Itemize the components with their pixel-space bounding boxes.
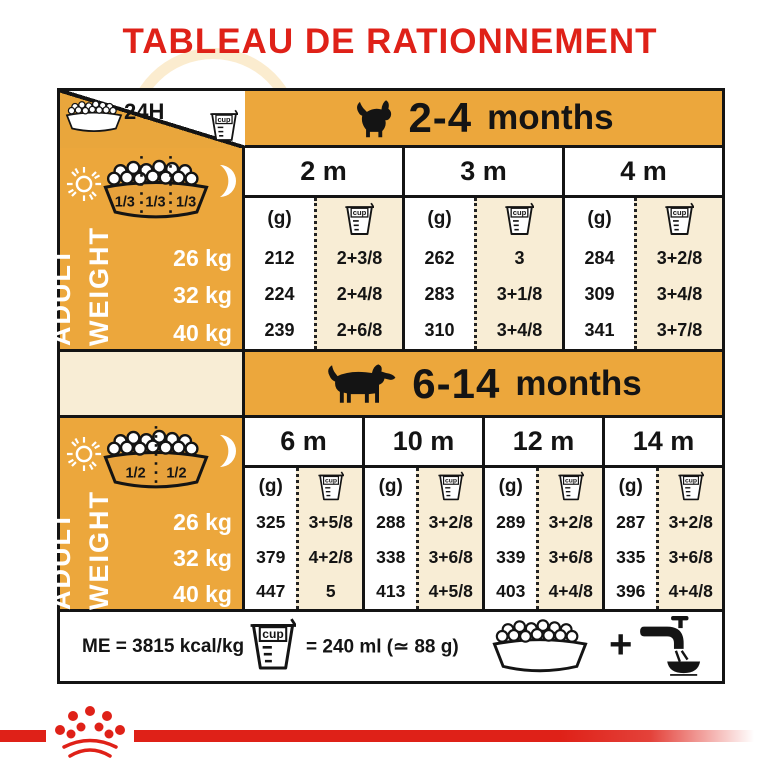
cup-unit-icon-wrap: cup — [477, 198, 562, 240]
grams-value: 262 — [405, 240, 474, 276]
grams-value: 447 — [245, 574, 296, 609]
moon-icon — [213, 434, 237, 468]
cup-value: 4+4/8 — [659, 574, 722, 609]
fraction-label: 1/2 — [166, 466, 186, 482]
cups-subcolumn: cup 3+2/8 3+6/8 4+5/8 — [416, 468, 482, 609]
grams-unit-label: (g) — [245, 468, 296, 505]
month-body: (g) 287 335 396 cup 3+2/8 3+6/8 4+4/8 — [605, 468, 722, 609]
cup-label: cup — [673, 208, 687, 217]
month-body: (g) 262 283 310 cup 3 3+1/8 3+4/8 — [405, 198, 562, 349]
footer-info-row: ME = 3815 kcal/kg cup = 240 ml (≃ 88 g) … — [60, 612, 722, 681]
month-column: 12 m (g) 289 339 403 cup 3+2/8 3+6/8 4+4… — [482, 418, 602, 609]
cup-label: cup — [565, 478, 577, 485]
grams-unit-label: (g) — [245, 198, 314, 240]
weight-rows: 26 kg 32 kg 40 kg — [173, 505, 232, 612]
month-header: 6 m — [245, 418, 362, 468]
grams-value: 283 — [405, 276, 474, 312]
fraction-label: 1/3 — [115, 195, 135, 211]
month-column: 14 m (g) 287 335 396 cup 3+2/8 3+6/8 4+4… — [602, 418, 722, 609]
brand-bar-right — [134, 730, 780, 742]
divided-bowl-thirds-icon: 1/3 1/3 1/3 — [102, 155, 210, 226]
cup-label: cup — [262, 627, 283, 641]
month-body: (g) 325 379 447 cup 3+5/8 4+2/8 5 — [245, 468, 362, 609]
age-range-number: 2-4 — [408, 94, 472, 142]
grams-value: 325 — [245, 505, 296, 540]
grams-value: 339 — [485, 540, 536, 575]
cup-icon: cup — [665, 202, 694, 237]
cup-unit-icon-wrap: cup — [299, 468, 362, 505]
cup-icon: cup — [505, 202, 534, 237]
grams-subcolumn: (g) 288 338 413 — [365, 468, 416, 609]
fraction-label: 1/3 — [145, 195, 165, 211]
meal-split-panel-1: 1/3 1/3 1/3 ADULT WEIGHT 26 kg 32 kg 40 … — [60, 148, 245, 352]
cup-value: 3+2/8 — [637, 240, 722, 276]
grams-value: 338 — [365, 540, 416, 575]
sun-icon — [66, 166, 102, 202]
month-label: 2 m — [300, 156, 347, 187]
grams-subcolumn: (g) 289 339 403 — [485, 468, 536, 609]
cup-unit-icon-wrap: cup — [317, 198, 402, 240]
weight-rows: 26 kg 32 kg 40 kg — [173, 240, 232, 352]
grams-value: 287 — [605, 505, 656, 540]
month-body: (g) 284 309 341 cup 3+2/8 3+4/8 3+7/8 — [565, 198, 722, 349]
cup-value: 5 — [299, 574, 362, 609]
grams-unit-label: (g) — [605, 468, 656, 505]
age-band-6-14-months: 6-14 months — [245, 352, 722, 418]
grams-unit-label: (g) — [365, 468, 416, 505]
grams-value: 341 — [565, 313, 634, 349]
cup-value: 3+7/8 — [637, 313, 722, 349]
cup-label: cup — [217, 115, 231, 124]
duration-label: 24H — [124, 99, 164, 125]
grams-subcolumn: (g) 325 379 447 — [245, 468, 296, 609]
month-label: 14 m — [633, 426, 695, 457]
month-column: 6 m (g) 325 379 447 cup 3+5/8 4+2/8 5 — [245, 418, 362, 609]
page: { "title": "TABLEAU DE RATIONNEMENT", "c… — [0, 0, 780, 780]
weight-row-label: 26 kg — [173, 505, 232, 541]
adult-dog-icon — [325, 362, 397, 406]
cups-subcolumn: cup 3+5/8 4+2/8 5 — [296, 468, 362, 609]
cup-value: 3+4/8 — [637, 276, 722, 312]
month-header: 2 m — [245, 148, 402, 198]
grams-subcolumn: (g) 287 335 396 — [605, 468, 656, 609]
weight-row-label: 32 kg — [173, 541, 232, 577]
cup-icon: cup — [210, 109, 238, 143]
month-label: 3 m — [460, 156, 507, 187]
cup-value: 3+2/8 — [419, 505, 482, 540]
cup-value: 4+5/8 — [419, 574, 482, 609]
cup-value: 3+6/8 — [659, 540, 722, 575]
puppy-icon — [353, 97, 393, 139]
grams-value: 403 — [485, 574, 536, 609]
page-title: TABLEAU DE RATIONNEMENT — [0, 22, 780, 62]
adult-weight-label: ADULT — [46, 511, 76, 610]
grams-subcolumn: (g) 284 309 341 — [565, 198, 634, 349]
cup-value: 3+2/8 — [539, 505, 602, 540]
grams-value: 224 — [245, 276, 314, 312]
cup-value: 3+4/8 — [477, 313, 562, 349]
cup-value: 3+2/8 — [659, 505, 722, 540]
plus-sign: + — [609, 622, 632, 667]
grams-value: 239 — [245, 313, 314, 349]
ration-table-2-4-months: 2 m (g) 212 224 239 cup 2+3/8 2+4/8 2+6/… — [245, 148, 722, 352]
cup-value: 3+1/8 — [477, 276, 562, 312]
age-range-word: months — [487, 98, 613, 138]
cup-label: cup — [325, 478, 337, 485]
month-body: (g) 289 339 403 cup 3+2/8 3+6/8 4+4/8 — [485, 468, 602, 609]
spacer-cell — [60, 352, 245, 418]
cup-unit-icon-wrap: cup — [539, 468, 602, 505]
month-label: 4 m — [620, 156, 667, 187]
energy-content-label: ME = 3815 kcal/kg — [82, 636, 244, 658]
grams-value: 310 — [405, 313, 474, 349]
cup-icon: cup — [438, 471, 464, 502]
cup-value: 4+2/8 — [299, 540, 362, 575]
cup-icon: cup — [318, 471, 344, 502]
cup-value: 2+3/8 — [317, 240, 402, 276]
month-header: 3 m — [405, 148, 562, 198]
brand-bar-left — [0, 730, 46, 742]
grams-unit-label: (g) — [565, 198, 634, 240]
cup-icon: cup — [345, 202, 374, 237]
cup-label: cup — [445, 478, 457, 485]
weight-row-label: 40 kg — [173, 315, 232, 352]
month-column: 10 m (g) 288 338 413 cup 3+2/8 3+6/8 4+5… — [362, 418, 482, 609]
weight-row-label: 32 kg — [173, 277, 232, 314]
month-header: 10 m — [365, 418, 482, 468]
cup-value: 3+6/8 — [539, 540, 602, 575]
legend-cell: 24H cup — [60, 91, 245, 148]
grams-unit-label: (g) — [485, 468, 536, 505]
grams-value: 309 — [565, 276, 634, 312]
weight-row-label: 40 kg — [173, 576, 232, 612]
cup-value: 2+4/8 — [317, 276, 402, 312]
adult-weight-label: WEIGHT — [84, 226, 114, 346]
cup-icon: cup — [678, 471, 704, 502]
month-header: 4 m — [565, 148, 722, 198]
cup-icon: cup — [558, 471, 584, 502]
weight-row-label: 26 kg — [173, 240, 232, 277]
ration-table-6-14-months: 6 m (g) 325 379 447 cup 3+5/8 4+2/8 5 — [245, 418, 722, 612]
age-range-word: months — [515, 364, 641, 404]
month-header: 14 m — [605, 418, 722, 468]
month-column: 3 m (g) 262 283 310 cup 3 3+1/8 3+4/8 — [402, 148, 562, 349]
month-label: 12 m — [513, 426, 575, 457]
month-column: 4 m (g) 284 309 341 cup 3+2/8 3+4/8 3+7/… — [562, 148, 722, 349]
grams-subcolumn: (g) 212 224 239 — [245, 198, 314, 349]
cup-value: 3+5/8 — [299, 505, 362, 540]
divided-bowl-halves-icon: 1/2 1/2 — [102, 425, 210, 496]
cup-value: 2+6/8 — [317, 313, 402, 349]
grams-value: 335 — [605, 540, 656, 575]
ration-table-board: 24H cup 2-4 months 1/3 1 — [57, 88, 725, 684]
adult-weight-label: WEIGHT — [84, 490, 114, 610]
fraction-label: 1/2 — [125, 466, 145, 482]
month-label: 10 m — [393, 426, 455, 457]
month-label: 6 m — [280, 426, 327, 457]
cup-unit-icon-wrap: cup — [659, 468, 722, 505]
grams-value: 379 — [245, 540, 296, 575]
moon-icon — [213, 164, 237, 198]
cups-subcolumn: cup 3 3+1/8 3+4/8 — [474, 198, 562, 349]
month-body: (g) 212 224 239 cup 2+3/8 2+4/8 2+6/8 — [245, 198, 402, 349]
month-body: (g) 288 338 413 cup 3+2/8 3+6/8 4+5/8 — [365, 468, 482, 609]
cups-subcolumn: cup 3+2/8 3+6/8 4+4/8 — [656, 468, 722, 609]
cup-equivalence-label: = 240 ml (≃ 88 g) — [306, 635, 459, 658]
water-tap-icon — [640, 616, 706, 676]
grams-subcolumn: (g) 262 283 310 — [405, 198, 474, 349]
adult-weight-label: ADULT — [46, 247, 76, 346]
meal-split-panel-2: 1/2 1/2 ADULT WEIGHT 26 kg 32 kg 40 kg — [60, 418, 245, 612]
grams-value: 288 — [365, 505, 416, 540]
grams-value: 413 — [365, 574, 416, 609]
grams-unit-label: (g) — [405, 198, 474, 240]
age-range-number: 6-14 — [412, 360, 500, 408]
grams-value: 289 — [485, 505, 536, 540]
food-bowl-icon — [65, 98, 123, 136]
cup-label: cup — [353, 208, 367, 217]
grams-value: 396 — [605, 574, 656, 609]
sun-icon — [66, 436, 102, 472]
grams-value: 284 — [565, 240, 634, 276]
month-header: 12 m — [485, 418, 602, 468]
cup-unit-icon-wrap: cup — [419, 468, 482, 505]
cup-value: 4+4/8 — [539, 574, 602, 609]
cup-value: 3+6/8 — [419, 540, 482, 575]
cups-subcolumn: cup 3+2/8 3+6/8 4+4/8 — [536, 468, 602, 609]
age-band-2-4-months: 2-4 months — [245, 91, 722, 148]
cups-subcolumn: cup 2+3/8 2+4/8 2+6/8 — [314, 198, 402, 349]
cups-subcolumn: cup 3+2/8 3+4/8 3+7/8 — [634, 198, 722, 349]
cup-icon: cup — [250, 617, 296, 673]
cup-label: cup — [685, 478, 697, 485]
month-column: 2 m (g) 212 224 239 cup 2+3/8 2+4/8 2+6/… — [245, 148, 402, 349]
food-bowl-icon — [490, 615, 590, 679]
grams-value: 212 — [245, 240, 314, 276]
royal-canin-crown-logo — [50, 702, 130, 766]
fraction-label: 1/3 — [176, 195, 196, 211]
cup-unit-icon-wrap: cup — [637, 198, 722, 240]
cup-label: cup — [513, 208, 527, 217]
cup-value: 3 — [477, 240, 562, 276]
